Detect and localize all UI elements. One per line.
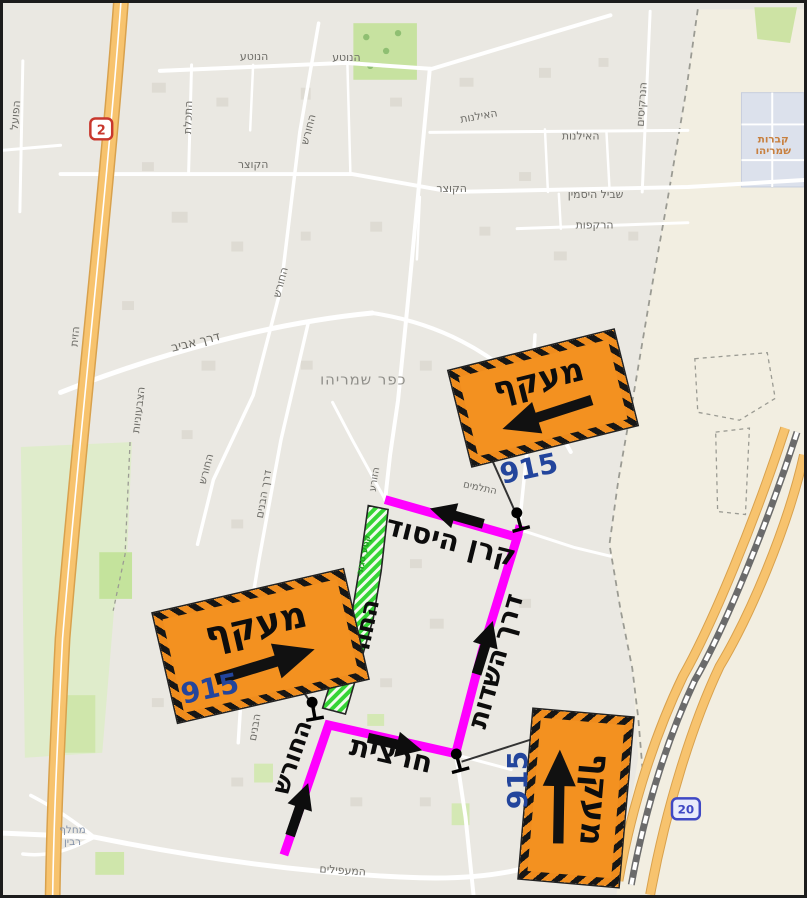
street-label-hanarkisim: הנרקיסים xyxy=(634,82,650,127)
route-number-bottom-right: 915 xyxy=(504,748,532,812)
map-canvas: 2 20 הפועל הנוטע הנוטע התכלת הקוצר הקוצר… xyxy=(3,3,804,895)
street-label-hamaapilim: המעפילים xyxy=(319,862,366,878)
street-label-hakotzer-w: הקוצר xyxy=(238,158,268,171)
street-label-hatlamim: התלמים xyxy=(462,479,498,497)
interchange-label-line2: רבין xyxy=(64,836,81,848)
route-shield-20: 20 xyxy=(672,798,700,819)
street-label-habanim: הבנים xyxy=(246,713,264,742)
route-shield-20-number: 20 xyxy=(678,802,695,816)
street-label-hanotea-w: הנוטע xyxy=(240,50,268,63)
street-label-harakafot: הרקפות xyxy=(576,219,614,232)
route-shield-2: 2 xyxy=(90,118,112,139)
street-label-hatchelet: התכלת xyxy=(181,100,195,134)
detour-map: 2 20 הפועל הנוטע הנוטע התכלת הקוצר הקוצר… xyxy=(0,0,807,898)
detour-sign-face: מעקף xyxy=(527,718,624,879)
town-label: כפר שמריהו xyxy=(320,370,406,388)
detour-sign-bottom-right: מעקף xyxy=(519,709,633,887)
street-label-hapoel: הפועל xyxy=(8,100,24,131)
arrow-up-icon xyxy=(539,740,581,853)
street-label-derech-aviv: דרך אביב xyxy=(170,328,222,355)
street-label-shvil-hayasmin: שביל היסמין xyxy=(568,188,624,201)
detour-sign-text: מעקף xyxy=(575,752,616,847)
cemetery-label-line2: שמריהו xyxy=(755,145,791,157)
route-shield-2-number: 2 xyxy=(97,123,106,138)
label-derech-hasadot: דרך השדות xyxy=(462,590,530,732)
street-label-hatzivoniyot: הצבעוניות xyxy=(129,386,148,434)
street-label-hazayit: הזית xyxy=(68,326,83,348)
street-label-hailanot-w: האילנות xyxy=(459,106,498,125)
sign-post-marker xyxy=(507,505,530,533)
cemetery-label-line1: קברות xyxy=(758,133,789,145)
street-label-hachoresh-n2: החורש xyxy=(270,266,291,299)
label-chartzit: חרצית xyxy=(347,728,436,780)
sign-post-marker xyxy=(302,695,324,722)
street-label-hakotzer-e: הקוצר xyxy=(436,182,466,195)
interchange-label-line1: מחלף xyxy=(59,824,85,836)
street-label-hailanot-e: האילנות xyxy=(562,129,600,142)
street-label-hanotea-e: הנוטע xyxy=(332,51,360,64)
